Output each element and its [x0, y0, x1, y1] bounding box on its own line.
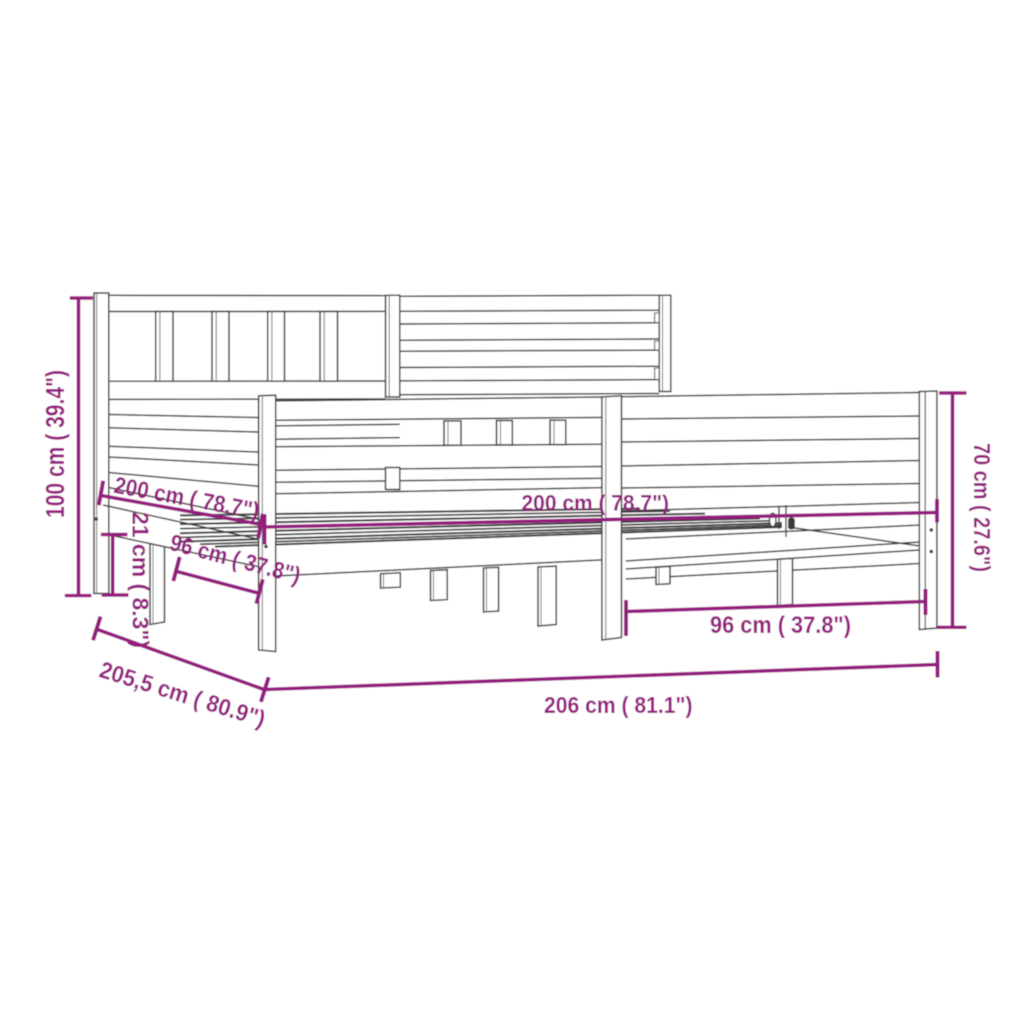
svg-text:21 cm ( 8.3"): 21 cm ( 8.3") [127, 512, 153, 648]
svg-text:96 cm ( 37.8"): 96 cm ( 37.8") [710, 612, 851, 639]
svg-text:100 cm ( 39.4"): 100 cm ( 39.4") [42, 370, 70, 518]
svg-text:206 cm ( 81.1"): 206 cm ( 81.1") [544, 692, 693, 718]
svg-text:70 cm ( 27.6"): 70 cm ( 27.6") [969, 443, 995, 572]
svg-text:200 cm ( 78.7"): 200 cm ( 78.7") [522, 491, 670, 516]
